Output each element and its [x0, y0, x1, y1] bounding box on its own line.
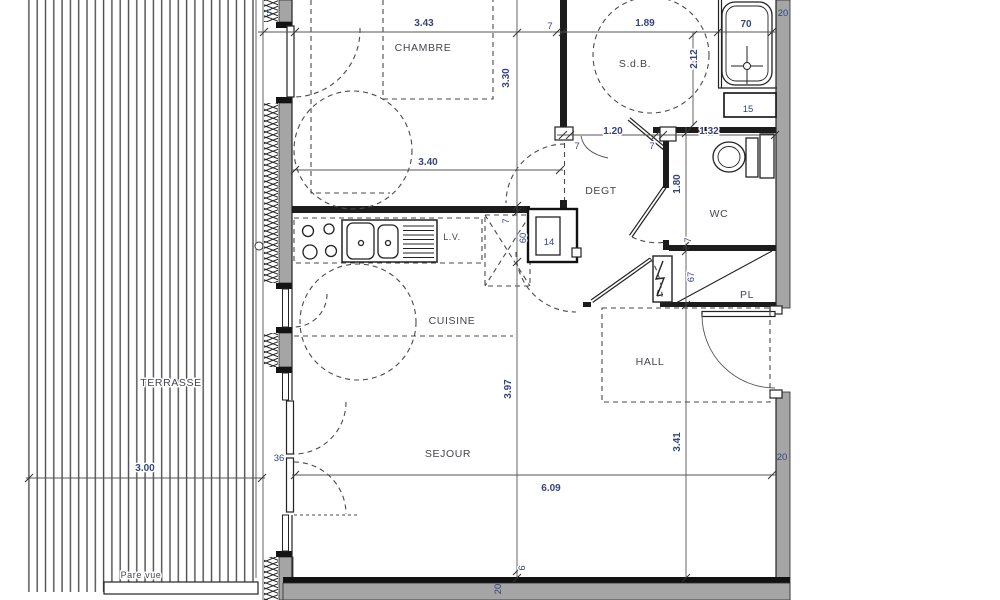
- dim-terrasse-width: 3.00: [135, 463, 155, 474]
- privacy-screen: [104, 582, 258, 594]
- wall-segment: [279, 333, 292, 367]
- wall-chambre-sdb: [560, 0, 567, 128]
- fixed-pane: [283, 515, 289, 551]
- dim-sdb-width: 1.89: [635, 18, 655, 29]
- floor-plan-drawing: 3.43 7 1.89 70 20 5 1.20 7 7 1.32 3.40 6…: [0, 0, 1000, 600]
- wall-segment: [279, 103, 292, 283]
- room-label-sejour: SEJOUR: [425, 448, 471, 460]
- dim-sejour-width: 6.09: [541, 483, 561, 494]
- hall-door: [591, 258, 662, 302]
- dim-chambre-width: 3.43: [414, 18, 434, 29]
- room-label-chambre: CHAMBRE: [395, 42, 452, 54]
- dim-gap: 6: [517, 565, 528, 570]
- door-jamb: [770, 390, 782, 398]
- label-dishwasher: L.V.: [443, 232, 461, 242]
- bathtub-icon: [718, 0, 777, 88]
- insulation-strip: [264, 557, 278, 600]
- insulation-strip: [264, 103, 278, 283]
- dim-wall-thickness: 20: [778, 8, 789, 19]
- dim-bathtub-width: 70: [740, 19, 752, 30]
- dim-counter: 60: [518, 233, 529, 244]
- right-wall-lower: [776, 392, 790, 600]
- dim-wall: 7: [547, 21, 552, 32]
- turning-circle: [300, 264, 416, 380]
- room-label-wc: WC: [710, 208, 729, 220]
- fixed-pane: [283, 373, 289, 400]
- dim-wall: 7: [649, 141, 654, 152]
- dim-sdb-door: 1.20: [603, 126, 623, 137]
- wall-segment: [279, 0, 292, 22]
- room-label-terrasse: TERRASSE: [140, 377, 201, 389]
- door-swing-arc: [294, 462, 346, 514]
- dim-niche: 15: [743, 104, 754, 115]
- door-swing-arc: [702, 315, 775, 388]
- bottom-wall: [283, 583, 790, 600]
- dim-hall-height: 3.41: [672, 432, 683, 452]
- wc-door: [630, 186, 667, 242]
- entry-door: [702, 312, 775, 389]
- balcony-door-leaf: [287, 26, 294, 97]
- room-label-cuisine: CUISINE: [429, 315, 476, 327]
- dim-wc-width: 1.32: [699, 126, 719, 137]
- room-label-degt: DEGT: [585, 185, 617, 197]
- label-privacy-screen: Pare vue: [121, 570, 162, 580]
- duct-box: [528, 209, 581, 262]
- doors: [287, 26, 776, 515]
- wall-hall-top: [583, 302, 591, 307]
- sink-icon: [342, 220, 437, 262]
- dim-chambre-width2: 3.40: [418, 157, 438, 168]
- downpipe-icon: [255, 242, 263, 250]
- terrasse-area: [24, 0, 263, 600]
- dim-sdb-height: 2.12: [689, 49, 700, 69]
- door-jamb: [660, 127, 676, 141]
- door-hinge: [572, 248, 581, 257]
- door-swing-arc: [294, 28, 360, 97]
- wardrobe-outline: [311, 0, 390, 193]
- wall-chambre-cuisine: [292, 206, 530, 213]
- bottom-wall-edge: [283, 577, 790, 583]
- dim-wall: 7: [501, 218, 512, 223]
- dim-corner: 5: [266, 8, 271, 19]
- terrace-door-leaf: [287, 401, 294, 454]
- dim-sejour-height: 3.97: [503, 379, 514, 399]
- terrace-door-leaf: [287, 458, 294, 512]
- turning-circle: [294, 91, 412, 209]
- room-label-pl: PL: [740, 289, 754, 301]
- insulation-strip: [264, 333, 278, 367]
- dim-wc-height: 1.80: [672, 174, 683, 194]
- door-swing-arc: [294, 402, 346, 454]
- floor-plan: 3.43 7 1.89 70 20 5 1.20 7 7 1.32 3.40 6…: [0, 0, 1000, 600]
- dim-wall: 7: [683, 237, 694, 242]
- room-label-sdb: S.d.B.: [619, 58, 651, 70]
- kitchen-window: [283, 289, 289, 327]
- exterior-walls: [283, 0, 790, 600]
- room-label-hall: HALL: [636, 356, 665, 368]
- terrasse-decking: [24, 0, 258, 592]
- dim-wall-thickness: 20: [777, 452, 788, 463]
- stove-icon: [303, 224, 337, 259]
- toilet-icon: [713, 134, 774, 178]
- dim-chambre-height: 3.30: [501, 68, 512, 88]
- dim-wall: 7: [574, 141, 579, 152]
- window-swing-arc: [294, 294, 327, 327]
- dim-wall-thickness: 20: [493, 584, 504, 595]
- right-wall-upper: [776, 0, 790, 308]
- dim-duct: 14: [544, 237, 555, 248]
- door-swing-arc: [632, 237, 666, 243]
- wall-stub: [663, 240, 669, 250]
- appliance-reservation-box: [485, 215, 530, 286]
- entry-door-leaf: [702, 312, 775, 317]
- dim-closet: 67: [686, 272, 697, 283]
- dim-ledge: 36: [274, 453, 285, 464]
